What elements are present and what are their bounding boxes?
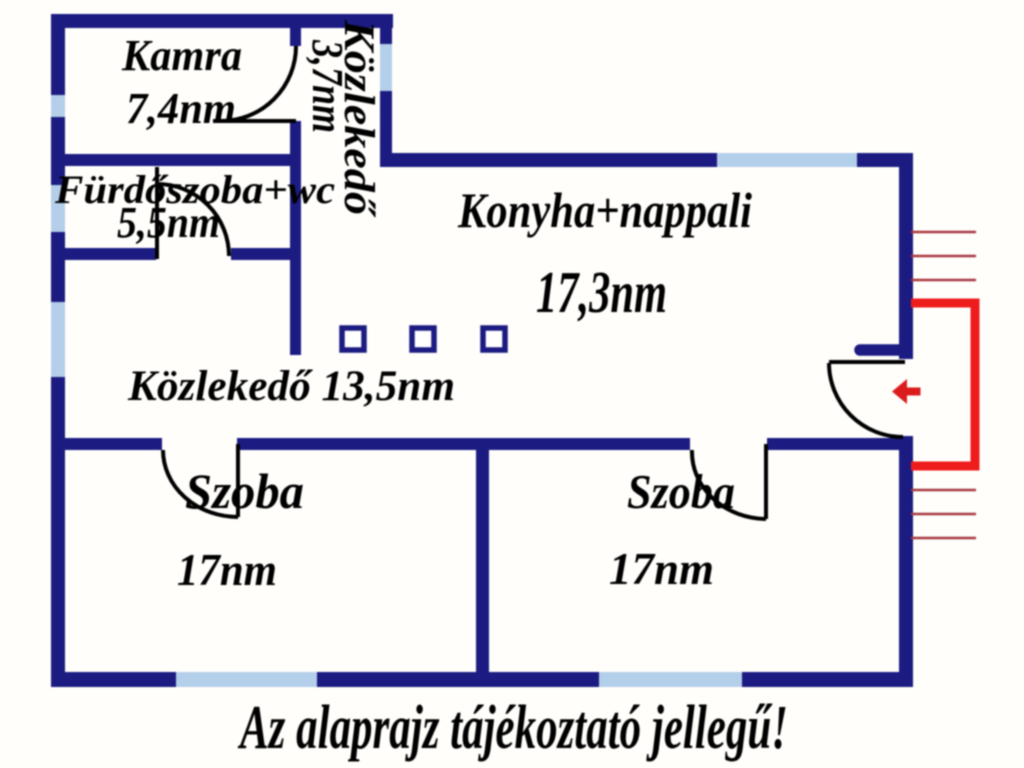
svg-text:3,7nm: 3,7nm	[303, 39, 352, 133]
svg-text:5,5nm: 5,5nm	[117, 198, 220, 247]
svg-text:Az alaprajz tájékoztató jelleg: Az alaprajz tájékoztató jellegű!	[237, 694, 788, 762]
svg-text:17,3nm: 17,3nm	[536, 259, 667, 325]
svg-text:Konyha+nappali: Konyha+nappali	[457, 182, 752, 238]
svg-text:Szoba: Szoba	[627, 464, 735, 519]
svg-text:17nm: 17nm	[609, 544, 714, 594]
svg-text:7,4nm: 7,4nm	[126, 84, 236, 133]
svg-text:Közlekedő 13,5nm: Közlekedő 13,5nm	[127, 363, 455, 410]
svg-text:17nm: 17nm	[177, 545, 277, 595]
svg-text:Szoba: Szoba	[185, 463, 304, 519]
svg-text:Kamra: Kamra	[121, 31, 242, 80]
